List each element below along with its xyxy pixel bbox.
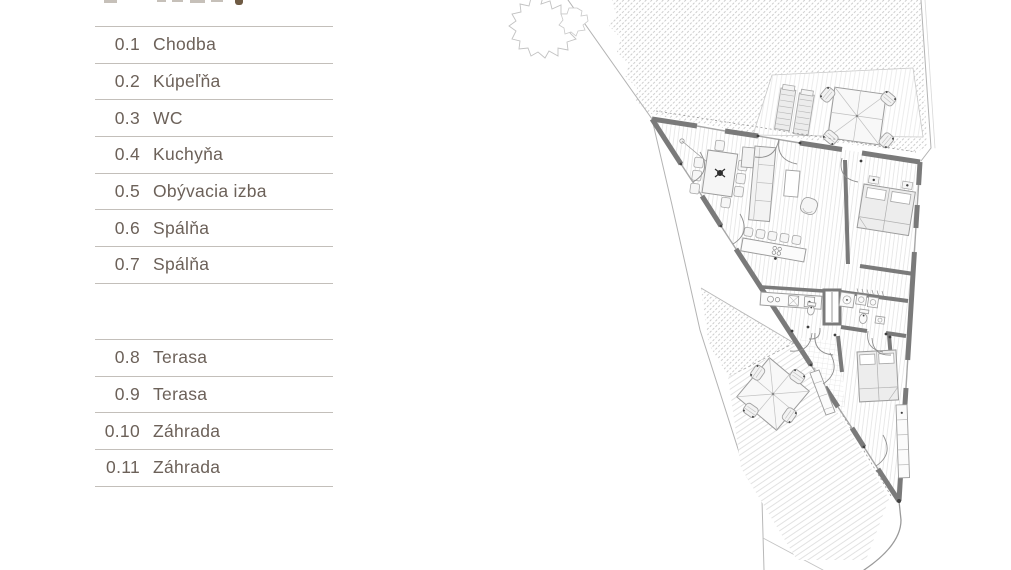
terrace-top: [753, 68, 923, 149]
bed-double-icon: [857, 350, 899, 402]
tree-icon: [509, 0, 588, 58]
floor-plan-drawing: [0, 0, 1011, 570]
shower-icon: [839, 292, 855, 308]
sink-icon: [875, 316, 885, 324]
wardrobe-icon: [896, 405, 910, 478]
coffee-table-icon: [784, 170, 800, 197]
